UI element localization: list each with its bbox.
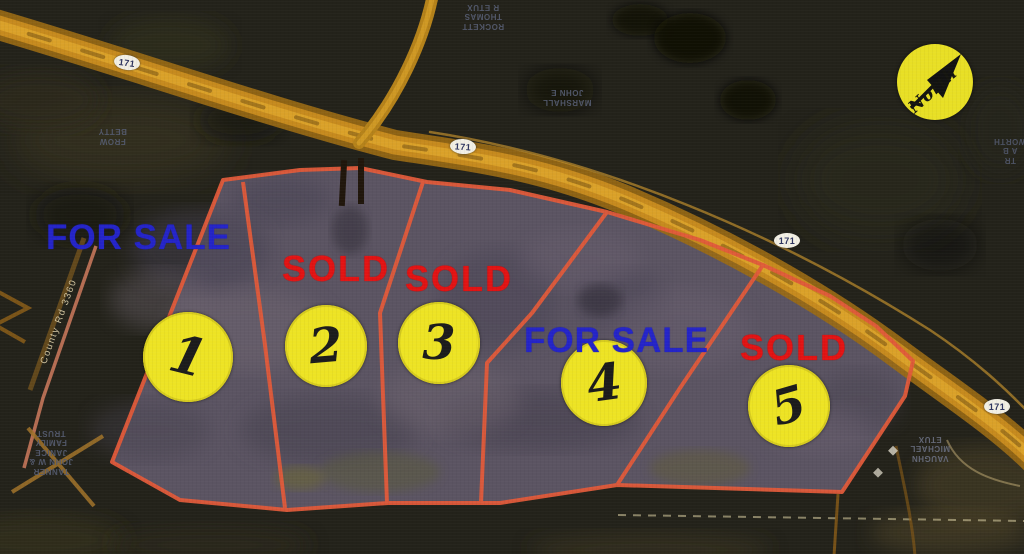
owner-label-right-edge: TR A B WORTH [985, 136, 1024, 165]
lot-1-status-label: FOR SALE [46, 218, 231, 258]
lot-4-status-label: FOR SALE [524, 321, 709, 361]
lot-2-status-label: SOLD [282, 248, 390, 290]
owner-label-upper-middle: MARSHALL JOHN E [530, 88, 604, 107]
lot-5-status-label: SOLD [740, 327, 848, 369]
land-plat-aerial-map: FOR SALE SOLD SOLD FOR SALE SOLD 1 2 3 4… [0, 0, 1024, 554]
lot-3-number: 3 [422, 319, 455, 367]
lot-2-number: 2 [307, 321, 344, 372]
owner-label-top-center: ROCKETT THOMAS R ETUX [450, 2, 516, 31]
route-shield-171: 171 [984, 399, 1010, 414]
route-shield-171: 171 [774, 233, 800, 248]
lot-3-marker: 3 [398, 302, 480, 384]
owner-label-left: FROW BETTY [90, 127, 135, 146]
lot-2-marker: 2 [285, 305, 367, 387]
lot-5-number: 5 [766, 378, 811, 433]
lot-1-number: 1 [164, 327, 212, 386]
lot-4-number: 4 [583, 356, 624, 410]
owner-label-bottom-left: TANNER JOHN W & JANICE FAMILY TRUST [16, 428, 86, 476]
lot-1-marker: 1 [143, 312, 233, 402]
lot-3-status-label: SOLD [405, 258, 513, 300]
lot-5-marker: 5 [748, 365, 830, 447]
north-compass: North [897, 44, 973, 120]
owner-label-bottom-right: VAUGHN MICHAEL ETUX [895, 434, 965, 463]
